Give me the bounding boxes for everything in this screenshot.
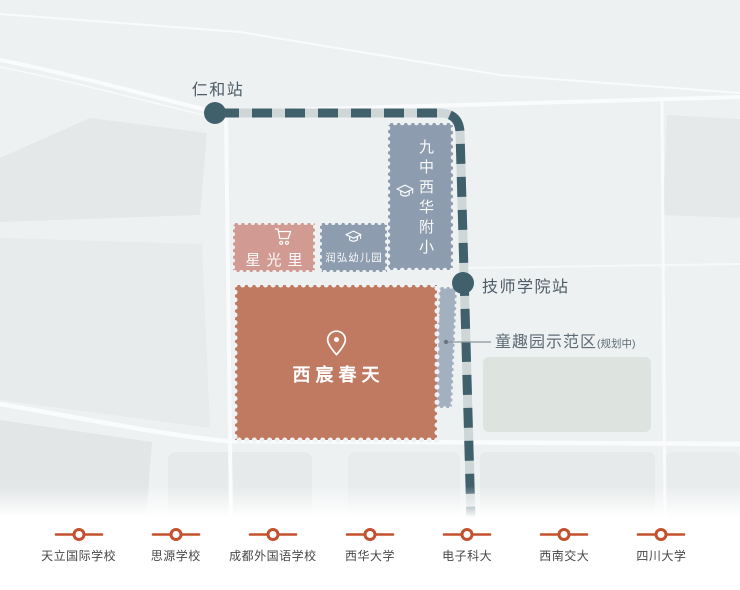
- legend-item: 成都外国语学校: [224, 527, 321, 564]
- legend-item-label: 思源学校: [151, 547, 201, 564]
- station-label-renhe: 仁和站: [168, 76, 268, 100]
- graduation-cap-icon: [345, 230, 362, 244]
- legend-item-label: 四川大学: [636, 547, 686, 564]
- road: [662, 100, 665, 520]
- callout-leader-dot: [444, 340, 448, 344]
- block-label-project: 西宸春天: [235, 361, 437, 387]
- parcel: [348, 452, 460, 520]
- legend-item-label: 西华大学: [345, 547, 395, 564]
- block-label-school: 九中西华附小: [415, 139, 436, 259]
- legend-bar: 天立国际学校 思源学校 成都外国语学校 西华大学 电子科大: [30, 527, 710, 564]
- legend-item: 天立国际学校: [30, 527, 127, 564]
- legend-item-label: 电子科大: [442, 547, 492, 564]
- station-line-icon: [539, 527, 589, 542]
- station-dot-renhe: [204, 102, 226, 124]
- callout-park: 童趣园示范区(规划中): [495, 328, 636, 352]
- station-line-icon: [151, 527, 201, 542]
- parcel: [666, 452, 740, 520]
- station-line-icon: [54, 527, 104, 542]
- legend-item: 电子科大: [419, 527, 516, 564]
- parcel-green: [483, 357, 651, 432]
- legend-item: 四川大学: [613, 527, 710, 564]
- parcel: [663, 115, 740, 218]
- station-line-icon: [636, 527, 686, 542]
- legend-item-label: 天立国际学校: [41, 547, 116, 564]
- block-label-kindergarten: 润弘幼儿园: [320, 250, 387, 265]
- legend-item: 思源学校: [127, 527, 224, 564]
- road: [0, 60, 740, 112]
- station-dot-jishi: [452, 272, 474, 294]
- road: [468, 264, 740, 268]
- parcel: [0, 238, 210, 428]
- legend-item-label: 西南交大: [539, 547, 589, 564]
- parcel: [0, 420, 152, 520]
- callout-park-suffix: (规划中): [597, 338, 636, 350]
- graduation-cap-icon: [396, 184, 414, 199]
- station-line-icon: [248, 527, 298, 542]
- location-map: 仁和站 技师学院站 九中西华附小 星光里 润弘幼儿园 西宸春天 童趣园示范区(规…: [0, 0, 740, 520]
- block-label-xingguangli: 星光里: [233, 249, 315, 270]
- station-line-icon: [345, 527, 395, 542]
- station-line-icon: [442, 527, 492, 542]
- location-pin-icon: [324, 329, 349, 358]
- station-label-jishi: 技师学院站: [482, 273, 570, 297]
- legend-item: 西南交大: [516, 527, 613, 564]
- shopping-cart-icon: [272, 226, 294, 248]
- parcel: [480, 452, 655, 520]
- callout-park-label: 童趣园示范区: [495, 334, 597, 351]
- road: [0, 14, 740, 93]
- parcel: [168, 452, 312, 520]
- legend-item: 西华大学: [321, 527, 418, 564]
- legend-item-label: 成都外国语学校: [229, 547, 317, 564]
- parcel: [0, 118, 207, 222]
